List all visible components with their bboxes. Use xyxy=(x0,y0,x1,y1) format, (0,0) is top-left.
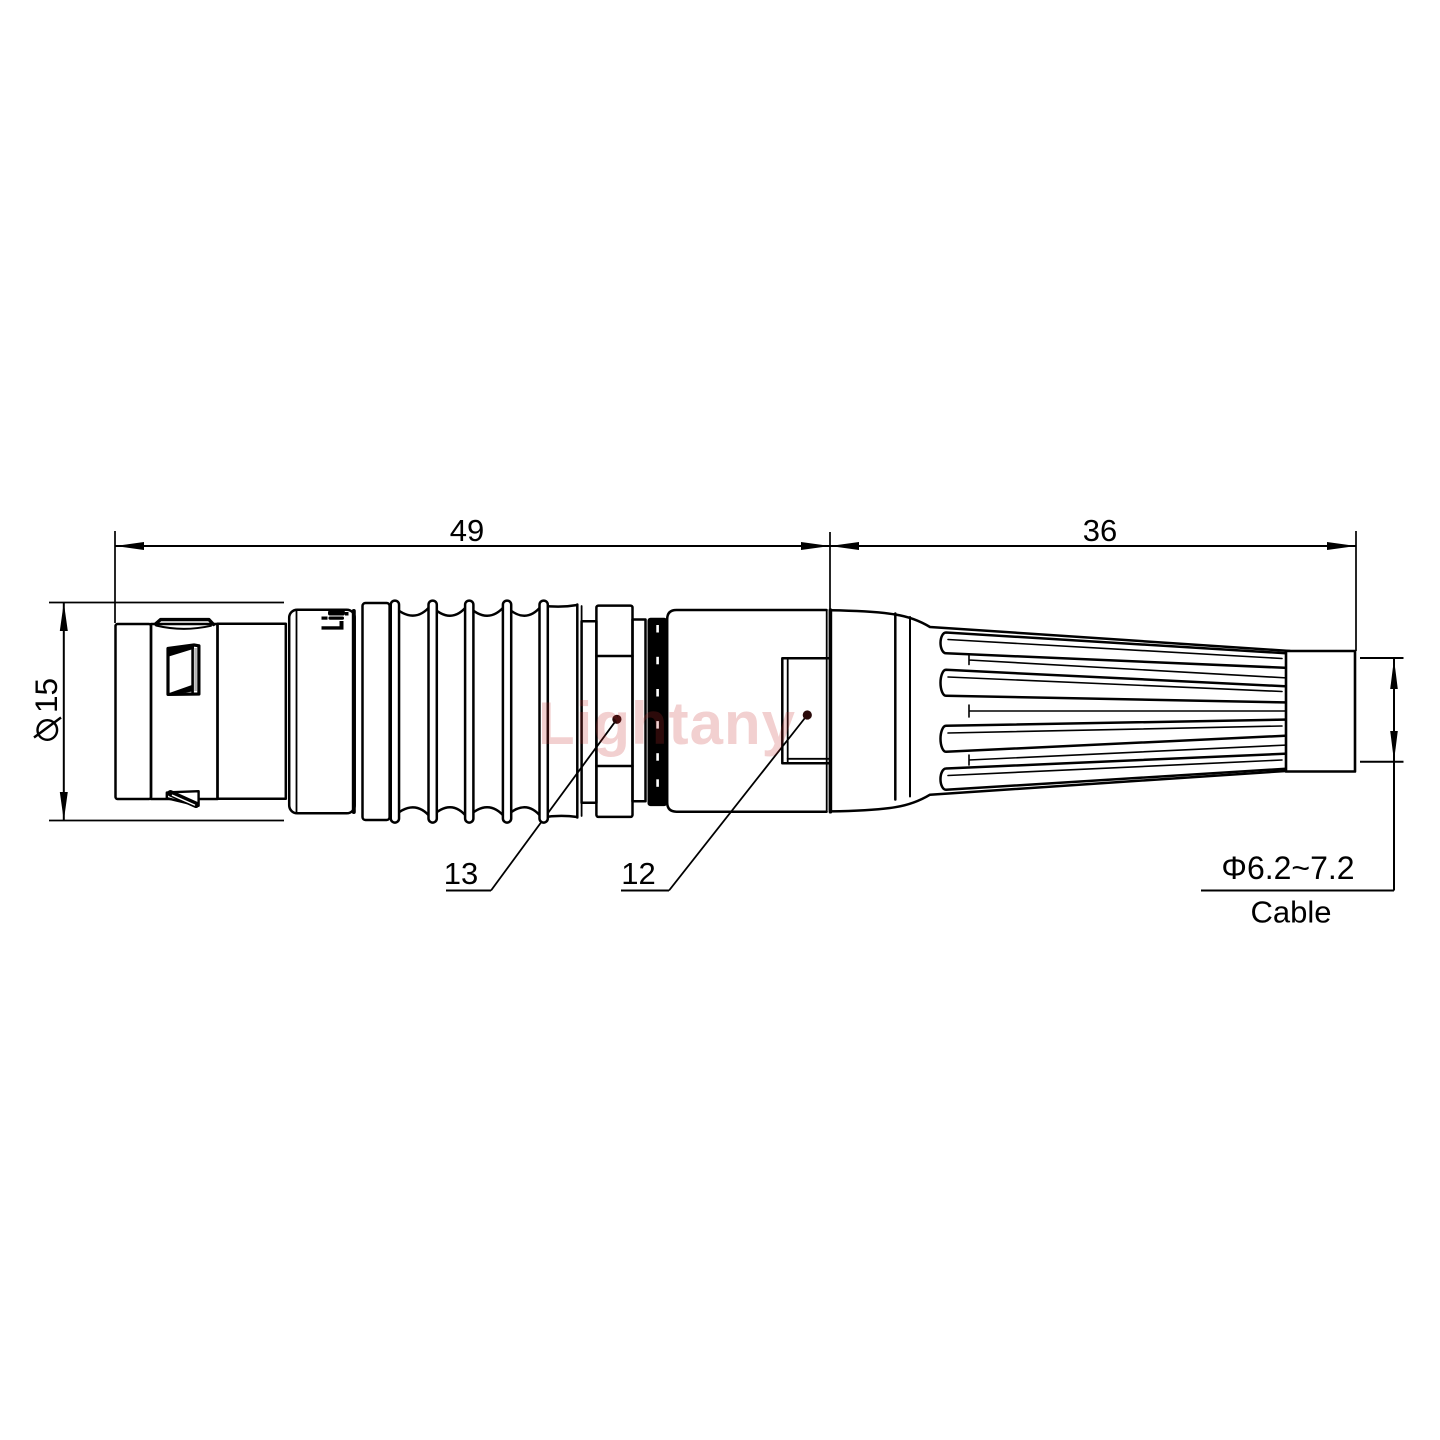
svg-text:Cable: Cable xyxy=(1251,895,1332,930)
svg-text:12: 12 xyxy=(621,856,655,891)
svg-text:49: 49 xyxy=(450,513,484,548)
svg-text:13: 13 xyxy=(444,856,478,891)
svg-text:36: 36 xyxy=(1083,513,1117,548)
svg-text:Φ6.2~7.2: Φ6.2~7.2 xyxy=(1221,850,1354,886)
svg-text:15: 15 xyxy=(28,678,64,713)
svg-text:Lightany: Lightany xyxy=(538,690,796,757)
